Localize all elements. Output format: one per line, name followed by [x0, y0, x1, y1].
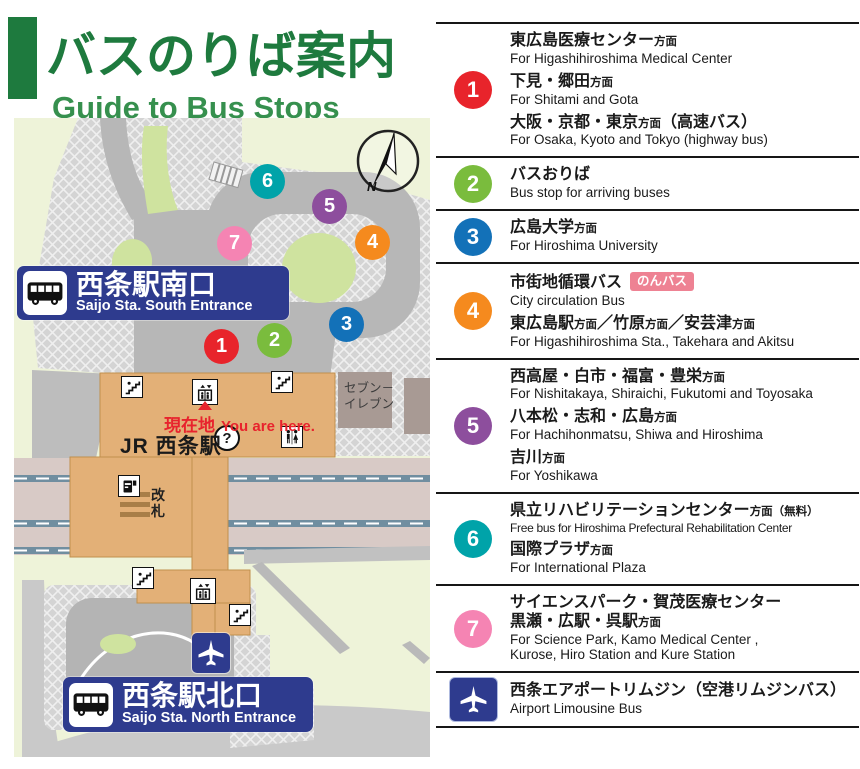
legend-jp-line: 西条エアポートリムジン（空港リムジンバス）	[510, 682, 859, 701]
north-entrance-jp: 西条駅北口	[122, 682, 296, 711]
stop-number-badge-5: 5	[454, 407, 492, 445]
legend-destination-group: 西条エアポートリムジン（空港リムジンバス）Airport Limousine B…	[510, 679, 859, 720]
legend-jp-line: 西高屋・白市・福富・豊栄方面	[510, 368, 859, 387]
legend-jp-line: 国際プラザ方面	[510, 541, 859, 560]
legend-en-line: For Yoshikawa	[510, 468, 859, 484]
legend-jp-line: 広島大学方面	[510, 219, 859, 238]
stairs-icon	[121, 376, 143, 398]
legend-jp-line: サイエンスパーク・賀茂医療センター	[510, 594, 859, 613]
legend-entry-airport: 西条エアポートリムジン（空港リムジンバス）Airport Limousine B…	[436, 673, 859, 728]
legend-entry-5: 5西高屋・白市・福富・豊栄方面For Nishitakaya, Shiraich…	[436, 360, 859, 494]
legend-jp-line: バスおりば	[510, 166, 859, 185]
compass-north-label: N	[367, 179, 377, 194]
legend-destination-group: 大阪・京都・東京方面（高速バス）For Osaka, Kyoto and Tok…	[510, 111, 859, 152]
legend-destination-group: 吉川方面For Yoshikawa	[510, 446, 859, 487]
nonbus-badge: のんバス	[630, 272, 694, 291]
legend-en-line: City circulation Bus	[510, 293, 859, 309]
legend-en-line: For Shitami and Gota	[510, 92, 859, 108]
legend-jp-line: 市街地循環バスのんバス	[510, 272, 859, 293]
airplane-icon	[192, 633, 230, 673]
station-name-label: JR 西条駅	[120, 430, 222, 460]
stop-number-badge-6: 6	[454, 520, 492, 558]
north-entrance-en: Saijo Sta. North Entrance	[122, 711, 296, 727]
legend-jp-line: 東広島駅方面／竹原方面／安芸津方面	[510, 315, 859, 334]
legend-entry-1: 1東広島医療センター方面For Higashihiroshima Medical…	[436, 24, 859, 158]
legend-destination-group: 県立リハビリテーションセンター方面（無料）Free bus for Hirosh…	[510, 499, 859, 538]
stop-number-badge-2: 2	[454, 165, 492, 203]
seven-eleven-line2: イレブン	[344, 396, 394, 412]
map-marker-3: 3	[329, 307, 364, 342]
ticket-machine-icon	[118, 475, 140, 497]
north-entrance-badge: 西条駅北口 Saijo Sta. North Entrance	[63, 677, 313, 732]
map-marker-1: 1	[204, 329, 239, 364]
legend-jp-line: 八本松・志和・広島方面	[510, 408, 859, 427]
map-marker-5: 5	[312, 189, 347, 224]
bus-icon	[69, 683, 113, 727]
legend-jp-line: 東広島医療センター方面	[510, 32, 859, 51]
legend-destination-group: 東広島医療センター方面For Higashihiroshima Medical …	[510, 29, 859, 70]
legend-jp-line: 吉川方面	[510, 449, 859, 468]
seven-eleven-label: セブン－ イレブン	[344, 380, 394, 413]
legend-jp-line: 大阪・京都・東京方面（高速バス）	[510, 114, 859, 133]
legend-en-line: For Nishitakaya, Shiraichi, Fukutomi and…	[510, 386, 859, 402]
page-title-japanese: バスのりば案内	[46, 16, 396, 88]
bus-icon	[23, 271, 67, 315]
legend-en-line: For Higashihiroshima Sta., Takehara and …	[510, 334, 859, 350]
title-accent-block	[8, 17, 37, 99]
legend-entry-7: 7サイエンスパーク・賀茂医療センター黒瀬・広駅・呉駅方面For Science …	[436, 586, 859, 674]
legend-en-line: For Hachihonmatsu, Shiwa and Hiroshima	[510, 427, 859, 443]
legend-en-line: Airport Limousine Bus	[510, 701, 859, 717]
bus-stop-legend: 1東広島医療センター方面For Higashihiroshima Medical…	[436, 22, 859, 728]
legend-en-line: For Higashihiroshima Medical Center	[510, 51, 859, 67]
south-entrance-en: Saijo Sta. South Entrance	[76, 299, 252, 315]
stairs-icon	[271, 371, 293, 393]
you-are-here-en: You are here.	[221, 418, 315, 435]
seven-eleven-line1: セブン－	[344, 380, 394, 396]
legend-jp-line: 県立リハビリテーションセンター方面（無料）	[510, 502, 859, 521]
stairs-icon	[229, 604, 251, 626]
legend-jp-line: 下見・郷田方面	[510, 73, 859, 92]
map-marker-6: 6	[250, 164, 285, 199]
legend-destination-group: 八本松・志和・広島方面For Hachihonmatsu, Shiwa and …	[510, 405, 859, 446]
legend-destination-group: 国際プラザ方面For International Plaza	[510, 538, 859, 579]
legend-destination-group: バスおりばBus stop for arriving buses	[510, 163, 859, 204]
stop-number-badge-7: 7	[454, 610, 492, 648]
stop-number-badge-1: 1	[454, 71, 492, 109]
stop-number-badge-3: 3	[454, 218, 492, 256]
ticket-gate-label: 改札	[151, 487, 167, 519]
legend-destination-group: サイエンスパーク・賀茂医療センター黒瀬・広駅・呉駅方面For Science P…	[510, 591, 859, 667]
legend-en-line: Bus stop for arriving buses	[510, 185, 859, 201]
legend-entry-6: 6県立リハビリテーションセンター方面（無料）Free bus for Hiros…	[436, 494, 859, 586]
legend-destination-group: 広島大学方面For Hiroshima University	[510, 216, 859, 257]
legend-destination-group: 東広島駅方面／竹原方面／安芸津方面For Higashihiroshima St…	[510, 312, 859, 353]
airplane-icon	[450, 678, 497, 721]
map-marker-7: 7	[217, 226, 252, 261]
you-are-here-pointer	[198, 401, 212, 410]
south-entrance-jp: 西条駅南口	[76, 271, 252, 300]
stop-number-badge-4: 4	[454, 292, 492, 330]
legend-jp-line: 黒瀬・広駅・呉駅方面	[510, 613, 859, 632]
legend-entry-4: 4市街地循環バスのんバスCity circulation Bus東広島駅方面／竹…	[436, 264, 859, 360]
legend-en-line: For Hiroshima University	[510, 238, 859, 254]
map-marker-2: 2	[257, 323, 292, 358]
legend-entry-2: 2バスおりばBus stop for arriving buses	[436, 158, 859, 211]
south-entrance-badge: 西条駅南口 Saijo Sta. South Entrance	[17, 266, 289, 320]
legend-destination-group: 西高屋・白市・福富・豊栄方面For Nishitakaya, Shiraichi…	[510, 365, 859, 406]
legend-destination-group: 市街地循環バスのんバスCity circulation Bus	[510, 269, 859, 312]
legend-en-line: Free bus for Hiroshima Prefectural Rehab…	[510, 521, 859, 535]
legend-en-line: Kurose, Hiro Station and Kure Station	[510, 647, 859, 663]
map-marker-4: 4	[355, 225, 390, 260]
station-map: N 1234567 西条駅南口 Saijo Sta. South Entranc…	[14, 118, 430, 757]
elevator-icon	[190, 578, 216, 604]
legend-en-line: For International Plaza	[510, 560, 859, 576]
legend-en-line: For Osaka, Kyoto and Tokyo (highway bus)	[510, 132, 859, 148]
legend-en-line: For Science Park, Kamo Medical Center ,	[510, 632, 859, 648]
stairs-icon	[132, 567, 154, 589]
legend-entry-3: 3広島大学方面For Hiroshima University	[436, 211, 859, 264]
legend-destination-group: 下見・郷田方面For Shitami and Gota	[510, 70, 859, 111]
